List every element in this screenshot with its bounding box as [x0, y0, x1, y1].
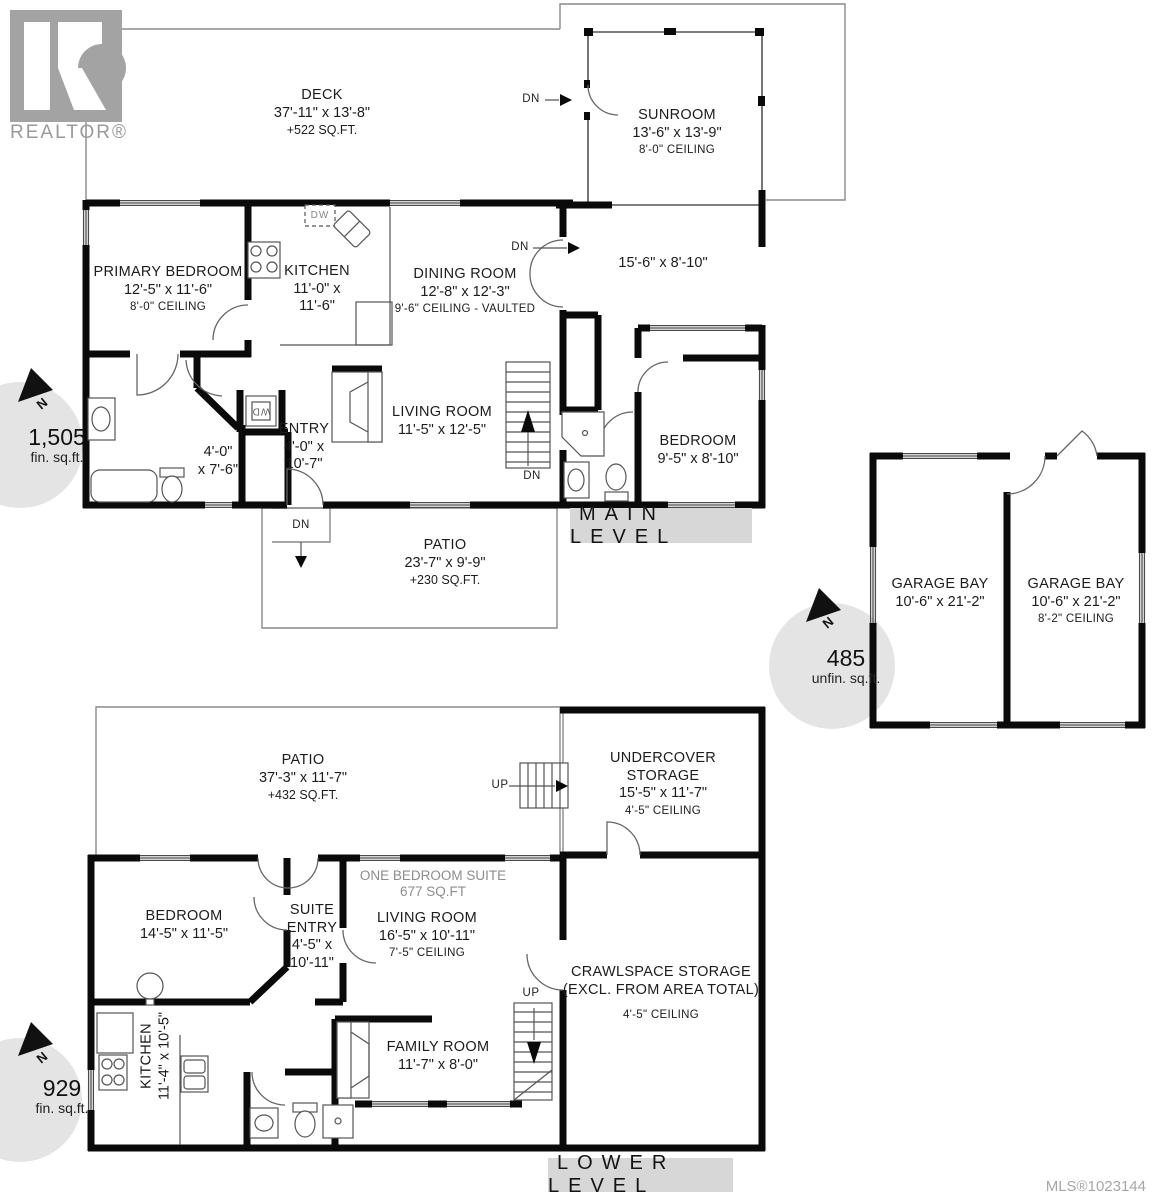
lower-area-badge: 929 fin. sq.ft. [36, 1076, 89, 1116]
logo-shape [10, 10, 122, 122]
garage-bay-right-label: GARAGE BAY 10'-6" x 21'-2" 8'-2" CEILING [1027, 576, 1124, 627]
dn-label-stairs: DN [523, 470, 541, 482]
family-room-label: FAMILY ROOM 11'-7" x 8'-0" [387, 1039, 490, 1074]
living-room-lower-label: LIVING ROOM 16'-5" x 10'-11" 7'-5" CEILI… [377, 910, 477, 961]
bedroom-main-label: BEDROOM 9'-5" x 8'-10" [657, 433, 738, 468]
crawlspace-label: CRAWLSPACE STORAGE (EXCL. FROM AREA TOTA… [563, 964, 759, 1023]
deck-label: DECK 37'-11" x 13'-8" +522 SQ.FT. [274, 87, 370, 139]
primary-bedroom-label: PRIMARY BEDROOM 12'-5" x 11'-6" 8'-0" CE… [94, 264, 243, 315]
dn-label-deck: DN [522, 93, 540, 105]
main-area-badge: 1,505 fin. sq.ft. [28, 425, 86, 465]
main-level-title: MAIN LEVEL [570, 508, 752, 543]
floor-plan-page: REALTOR® [0, 0, 1152, 1200]
garage-bay-left-label: GARAGE BAY 10'-6" x 21'-2" [891, 576, 988, 611]
bedroom-lower-label: BEDROOM 14'-5" x 11'-5" [140, 908, 228, 943]
realtor-logo-icon [10, 10, 122, 122]
suite-title-label: ONE BEDROOM SUITE 677 SQ.FT [360, 868, 506, 900]
dn-label-dining: DN [511, 241, 529, 253]
wing-dims-label: 15'-6" x 8'-10" [618, 255, 707, 273]
dishwasher-label: DW [311, 210, 330, 221]
dn-label-patio: DN [292, 519, 310, 531]
realtor-caption: REALTOR® [6, 122, 132, 144]
entry-label: ENTRY 4'-0" x 10'-7" [279, 421, 329, 474]
washer-dryer-label: WD [252, 406, 271, 417]
mls-number: MLS®1023144 [1046, 1178, 1146, 1195]
sunroom-label: SUNROOM 13'-6" x 13'-9" 8'-0" CEILING [632, 107, 721, 158]
up-label-stairs: UP [523, 987, 540, 999]
up-label-patio: UP [492, 779, 509, 791]
dining-room-label: DINING ROOM 12'-8" x 12'-3" 9'-6" CEILIN… [395, 266, 536, 317]
patio-main-label: PATIO 23'-7" x 9'-9" +230 SQ.FT. [404, 537, 485, 589]
lower-level-title: LOWER LEVEL [548, 1158, 733, 1192]
suite-entry-label: SUITE ENTRY 4'-5" x 10'-11" [287, 902, 337, 972]
kitchen-lower-label: KITCHEN 11'-4" x 10'-5" [139, 1012, 174, 1100]
patio-lower-label: PATIO 37'-3" x 11'-7" +432 SQ.FT. [259, 752, 347, 804]
garage-area-badge: 485 unfin. sq.ft. [812, 646, 880, 686]
living-room-label: LIVING ROOM 11'-5" x 12'-5" [392, 404, 492, 439]
hall-label: 4'-0" x 7'-6" [198, 444, 238, 479]
kitchen-label: KITCHEN 11'-0" x 11'-6" [284, 263, 350, 316]
undercover-storage-label: UNDERCOVER STORAGE 15'-5" x 11'-7" 4'-5"… [610, 750, 716, 819]
